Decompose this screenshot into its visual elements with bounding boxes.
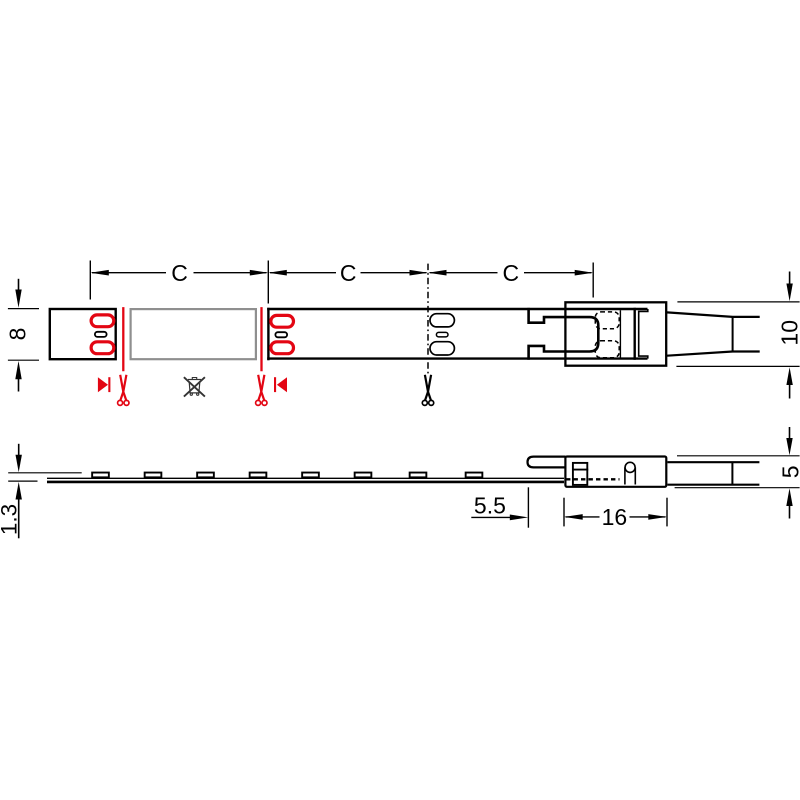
svg-text:16: 16 (602, 504, 628, 530)
svg-text:10: 10 (777, 320, 800, 346)
svg-text:5.5: 5.5 (474, 493, 506, 519)
svg-text:C: C (171, 260, 188, 286)
svg-text:5: 5 (777, 465, 800, 478)
svg-text:1.3: 1.3 (0, 504, 22, 535)
svg-text:8: 8 (5, 328, 31, 341)
svg-text:C: C (502, 260, 519, 286)
svg-text:C: C (340, 260, 357, 286)
